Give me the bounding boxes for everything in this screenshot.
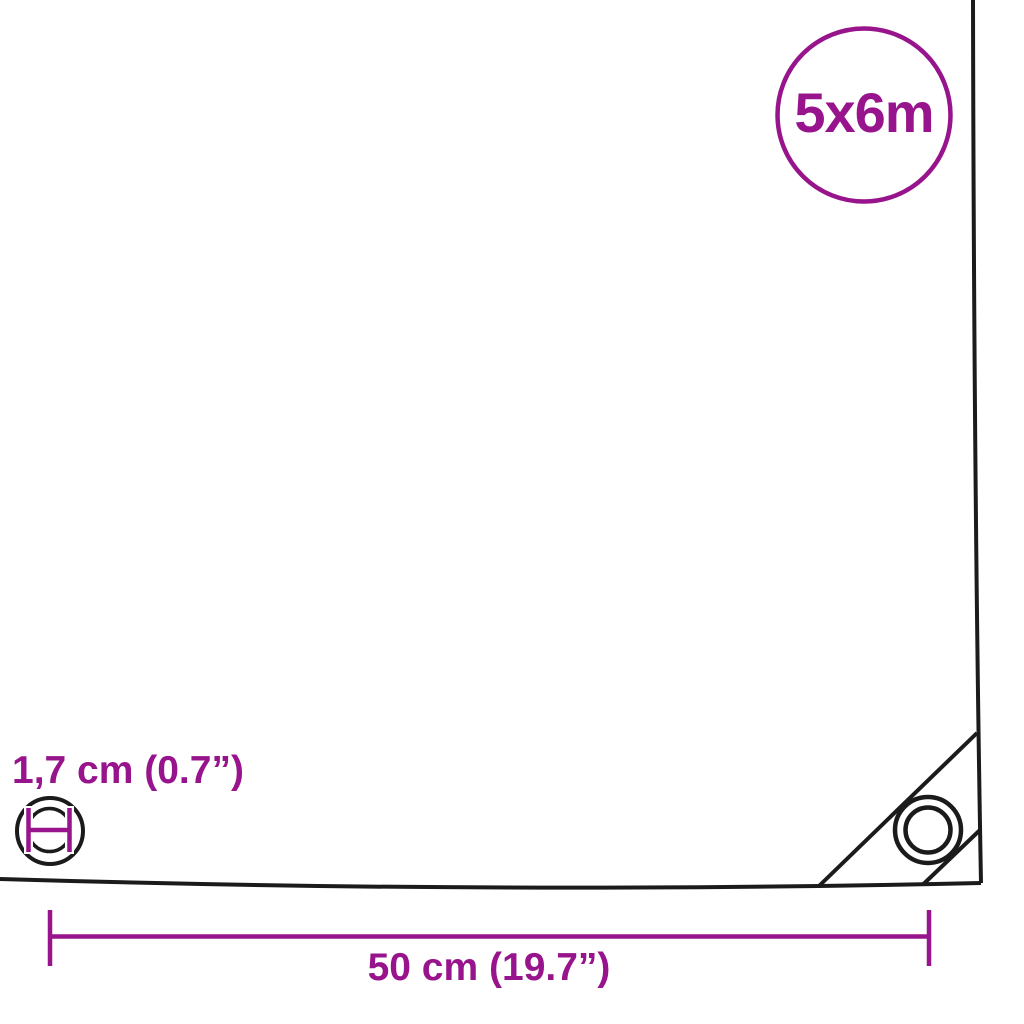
eyelet-diameter-icon: [17, 798, 83, 864]
tarpaulin-dimension-diagram: 1,7 cm (0.7”) 50 cm (19.7”) 5x6m: [0, 0, 1024, 1024]
corner-eyelet-inner-ring: [906, 808, 951, 853]
eyelet-size-label: 1,7 cm (0.7”): [12, 749, 244, 792]
width-measurement-label: 50 cm (19.7”): [368, 946, 611, 989]
diagram-canvas: 1,7 cm (0.7”) 50 cm (19.7”) 5x6m: [0, 0, 1024, 1024]
corner-eyelet-icon: [895, 797, 961, 863]
width-measurement: 50 cm (19.7”): [50, 910, 929, 989]
tarp-right-edge: [973, 0, 981, 883]
size-badge: 5x6m: [778, 29, 951, 202]
size-badge-label: 5x6m: [794, 81, 933, 144]
tarp-bottom-edge: [0, 879, 981, 888]
corner-seam-small: [923, 830, 980, 885]
